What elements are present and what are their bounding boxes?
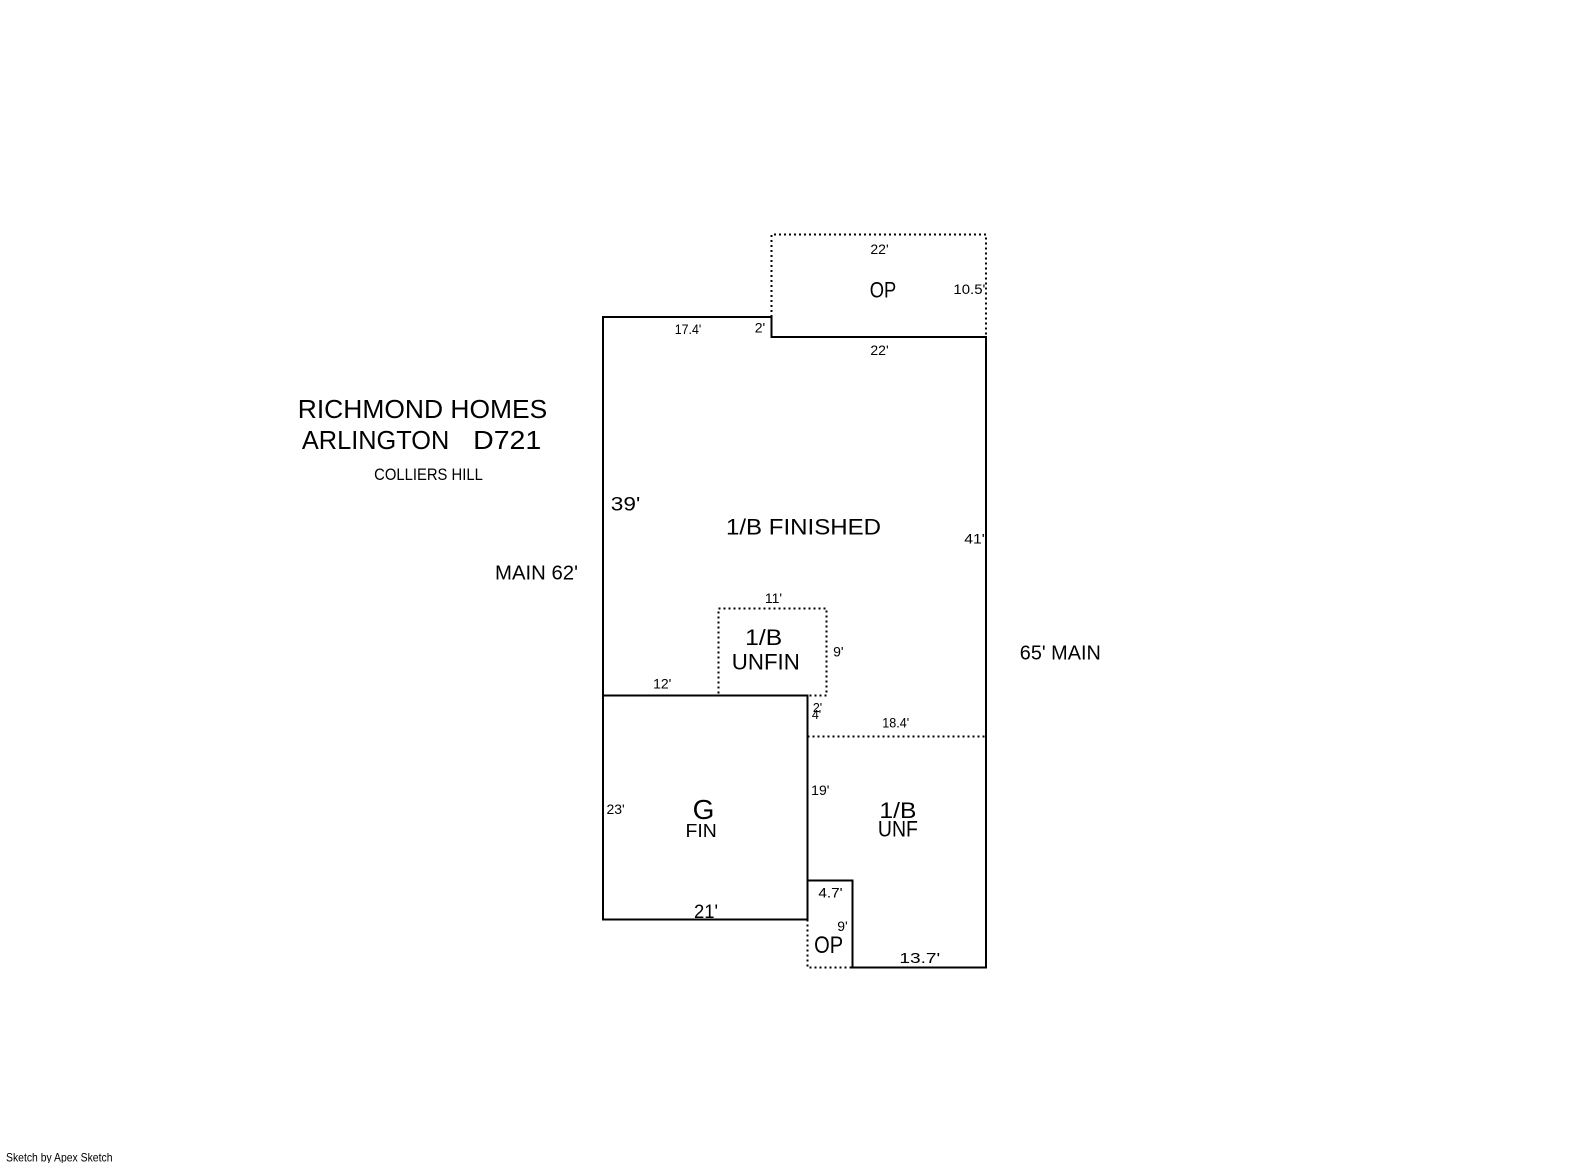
- svg-text:11': 11': [765, 590, 782, 606]
- svg-text:1/B: 1/B: [745, 625, 782, 650]
- svg-text:FIN: FIN: [686, 820, 717, 841]
- svg-text:1/B FINISHED: 1/B FINISHED: [726, 515, 881, 540]
- svg-text:COLLIERS HILL: COLLIERS HILL: [374, 466, 483, 484]
- svg-text:OP: OP: [870, 277, 897, 302]
- svg-text:39': 39': [611, 494, 641, 516]
- svg-text:18.4': 18.4': [882, 715, 909, 731]
- svg-text:4.7': 4.7': [818, 884, 842, 900]
- svg-text:17.4': 17.4': [675, 321, 702, 337]
- svg-text:23': 23': [606, 801, 624, 817]
- svg-text:22': 22': [870, 342, 888, 358]
- svg-text:MAIN 62': MAIN 62': [495, 563, 578, 585]
- svg-text:19': 19': [811, 782, 829, 798]
- svg-text:UNF: UNF: [878, 817, 918, 842]
- svg-text:ARLINGTON: ARLINGTON: [302, 425, 449, 455]
- svg-text:D721: D721: [473, 425, 541, 455]
- svg-text:4': 4': [812, 708, 821, 722]
- svg-text:22': 22': [870, 241, 888, 257]
- svg-text:RICHMOND HOMES: RICHMOND HOMES: [298, 394, 548, 424]
- svg-text:UNFIN: UNFIN: [732, 649, 800, 674]
- svg-text:9': 9': [833, 644, 843, 660]
- svg-text:10.5': 10.5': [953, 281, 985, 297]
- svg-text:13.7': 13.7': [899, 950, 940, 967]
- svg-text:12': 12': [653, 675, 671, 691]
- svg-text:Sketch by Apex Sketch: Sketch by Apex Sketch: [6, 1151, 113, 1164]
- svg-text:21': 21': [694, 902, 718, 923]
- svg-text:65' MAIN: 65' MAIN: [1020, 643, 1101, 665]
- svg-text:41': 41': [964, 531, 985, 547]
- svg-text:OP: OP: [814, 932, 843, 959]
- svg-text:2': 2': [755, 320, 765, 336]
